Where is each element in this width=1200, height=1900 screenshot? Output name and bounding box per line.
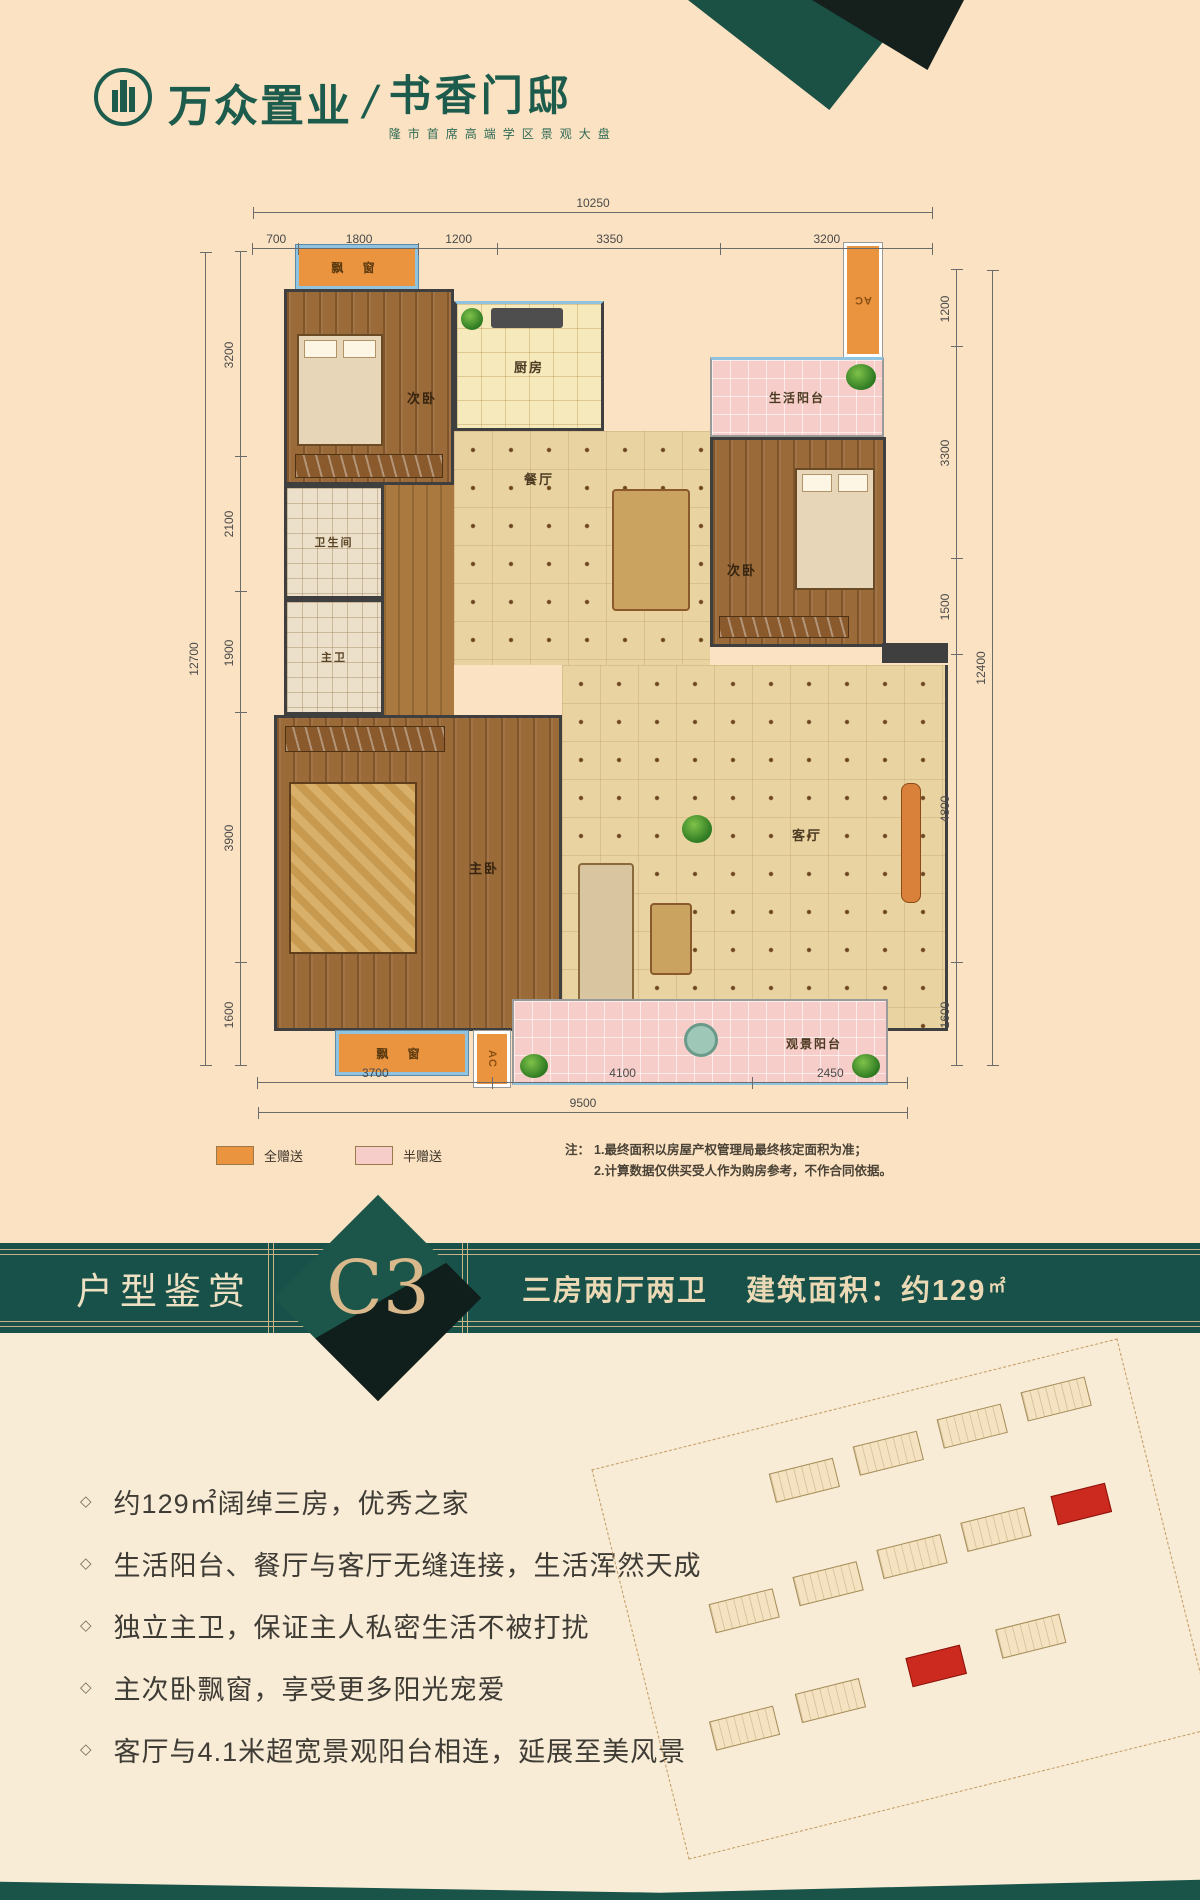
note-line: 1.最终面积以房屋产权管理局最终核定面积为准； [594, 1140, 892, 1161]
dimension-segment: 700 [253, 248, 299, 249]
dimension-segment: 3200 [240, 252, 241, 457]
dimension-total-top: 10250 [253, 212, 933, 213]
dimension-segment: 3300 [956, 347, 957, 559]
hallway [384, 485, 454, 715]
room-label: 生活阳台 [769, 389, 825, 406]
room-label: 飘 窗 [331, 259, 382, 276]
site-building [709, 1706, 780, 1751]
site-building [876, 1534, 947, 1579]
room-bay-window-top: 飘 窗 [296, 245, 418, 289]
dimension-segment: 1500 [956, 559, 957, 655]
project-name: 书香门邸 [389, 62, 617, 123]
dimension-segment: 3200 [721, 248, 933, 249]
dimension-segment: 1900 [240, 592, 241, 714]
wall-segment [882, 643, 948, 663]
feature-item: ◇生活阳台、餐厅与客厅无缝连接，生活浑然天成 [80, 1532, 702, 1594]
disclaimer-note: 注： 1.最终面积以房屋产权管理局最终核定面积为准； 2.计算数据仅供买受人作为… [565, 1140, 892, 1182]
coffee-table-icon [650, 903, 692, 975]
bed-icon [795, 468, 875, 590]
section-title: 户型鉴赏 [76, 1261, 252, 1315]
room-kitchen: 厨房 [454, 301, 604, 431]
feature-item: ◇客厅与4.1米超宽景观阳台相连，延展至美风景 [80, 1718, 702, 1780]
unit-description: 三房两厅两卫 建筑面积：约129㎡ [522, 1267, 1007, 1309]
gold-line [0, 1254, 1200, 1255]
developer-logo-icon [92, 66, 154, 128]
legend: 全赠送 半赠送 [216, 1146, 442, 1165]
dimension-total-left: 12700 [205, 252, 206, 1066]
dining-table-icon [612, 489, 690, 611]
room-label: 次卧 [727, 560, 757, 579]
plant-icon [461, 308, 483, 330]
plant-icon [682, 815, 712, 843]
poster-page: 万众置业 / 书香门邸 隆市首席高端学区景观大盘 飘 窗 次卧 厨房 AC [0, 0, 1200, 1900]
note-prefix: 注： [565, 1140, 590, 1182]
room-bedroom-right: 次卧 [710, 437, 886, 647]
site-building [708, 1588, 779, 1633]
dimension-segment: 1800 [299, 248, 418, 249]
dimension-segment: 3350 [498, 248, 720, 249]
floor-plan: 飘 窗 次卧 厨房 AC 生活阳台 餐厅 [250, 243, 950, 1055]
diamond-bullet-icon: ◇ [80, 1616, 92, 1634]
dimension-segment: 4100 [493, 1082, 753, 1083]
dimension-row-bottom: 370041002450 [258, 1082, 908, 1083]
site-building [995, 1614, 1066, 1659]
legend-swatch-orange [216, 1146, 254, 1165]
room-label: 飘 窗 [376, 1045, 427, 1062]
room-label: 卫生间 [315, 534, 354, 550]
feature-item: ◇独立主卫，保证主人私密生活不被打扰 [80, 1594, 702, 1656]
plant-icon [846, 364, 876, 390]
unit-layout: 三房两厅两卫 [522, 1267, 708, 1309]
dimension-segment: 1200 [956, 270, 957, 347]
sofa-icon [578, 863, 634, 1005]
plant-icon [520, 1054, 548, 1078]
feature-text: 主次卧飘窗，享受更多阳光宠爱 [114, 1668, 506, 1707]
feature-text: 约129㎡阔绰三房，优秀之家 [114, 1482, 470, 1521]
site-building [937, 1404, 1008, 1449]
room-bay-window-bottom: 飘 窗 [336, 1031, 468, 1075]
room-bathroom: 卫生间 [284, 485, 384, 599]
legend-item-half-gift: 半赠送 [355, 1146, 442, 1165]
brand-header: 万众置业 / 书香门邸 隆市首席高端学区景观大盘 [92, 62, 617, 142]
room-label: 客厅 [792, 825, 822, 844]
legend-item-full-gift: 全赠送 [216, 1146, 303, 1165]
dimension-col-right: 12003300150048001600 [956, 270, 957, 1066]
note-line: 2.计算数据仅供买受人作为购房参考，不作合同依据。 [594, 1161, 892, 1182]
site-building [795, 1678, 866, 1723]
room-dining: 餐厅 [454, 431, 710, 665]
diamond-bullet-icon: ◇ [80, 1678, 92, 1696]
wardrobe-icon [295, 454, 443, 478]
room-living-balcony: 生活阳台 [710, 357, 884, 437]
feature-item: ◇主次卧飘窗，享受更多阳光宠爱 [80, 1656, 702, 1718]
diamond-bullet-icon: ◇ [80, 1554, 92, 1572]
site-building [769, 1458, 840, 1503]
site-building [960, 1507, 1031, 1552]
legend-label: 全赠送 [264, 1146, 303, 1165]
dimension-col-left: 32002100190039001600 [240, 252, 241, 1066]
pillow-icon [304, 340, 337, 358]
pillow-icon [343, 340, 376, 358]
highlighted-building [1051, 1483, 1113, 1526]
dimension-total-bottom: 9500 [258, 1112, 908, 1113]
dimension-segment: 3900 [240, 713, 241, 963]
gold-line [0, 1249, 1200, 1250]
room-label: AC [486, 1050, 498, 1068]
unit-banner: 户型鉴赏 三房两厅两卫 建筑面积：约129㎡ [0, 1243, 1200, 1333]
wardrobe-icon [285, 726, 445, 752]
balcony-table-icon [684, 1023, 718, 1057]
highlighted-building [905, 1645, 967, 1688]
plant-icon [852, 1054, 880, 1078]
gold-line [0, 1326, 1200, 1327]
diamond-bullet-icon: ◇ [80, 1740, 92, 1758]
wardrobe-icon [719, 616, 849, 638]
project-tagline: 隆市首席高端学区景观大盘 [389, 125, 617, 142]
dimension-segment: 3700 [258, 1082, 493, 1083]
gold-line [0, 1321, 1200, 1322]
room-label: 厨房 [514, 357, 544, 376]
tv-cabinet-icon [901, 783, 921, 903]
ac-platform-top: AC [844, 243, 882, 357]
room-label: 观景阳台 [786, 1035, 842, 1052]
bed-icon [297, 334, 383, 446]
room-label: 餐厅 [524, 469, 554, 488]
gold-divider [273, 1243, 274, 1333]
developer-name: 万众置业 [168, 70, 352, 134]
gold-divider [268, 1243, 269, 1333]
room-master-bathroom: 主卫 [284, 599, 384, 715]
dimension-segment: 1200 [419, 248, 499, 249]
site-building [1021, 1376, 1092, 1421]
dimension-segment: 1600 [956, 963, 957, 1066]
diamond-bullet-icon: ◇ [80, 1492, 92, 1510]
dimension-segment: 4800 [956, 655, 957, 963]
master-bed-icon [289, 782, 417, 954]
site-building [853, 1431, 924, 1476]
pillow-icon [802, 474, 833, 492]
room-label: 次卧 [407, 388, 437, 407]
brand-separator: / [358, 75, 382, 129]
room-living: 客厅 [562, 665, 948, 1031]
feature-text: 客厅与4.1米超宽景观阳台相连，延展至美风景 [114, 1730, 687, 1769]
legend-label: 半赠送 [403, 1146, 442, 1165]
legend-swatch-pink [355, 1146, 393, 1165]
pillow-icon [838, 474, 869, 492]
feature-text: 独立主卫，保证主人私密生活不被打扰 [114, 1606, 590, 1645]
dimension-row-top: 7001800120033503200 [253, 248, 933, 249]
unit-code: C3 [312, 1243, 444, 1333]
dimension-total-right: 12400 [992, 270, 993, 1066]
dimension-segment: 2100 [240, 457, 241, 592]
unit-area: 建筑面积：约129㎡ [746, 1267, 1007, 1309]
stove-icon [491, 308, 563, 328]
room-bedroom-top-left: 次卧 [284, 289, 454, 485]
room-label: AC [854, 294, 872, 306]
room-label: 主卧 [469, 858, 499, 877]
room-master-bedroom: 主卧 [274, 715, 562, 1031]
dimension-segment: 1600 [240, 963, 241, 1066]
site-building [792, 1561, 863, 1606]
room-label: 主卫 [321, 649, 347, 665]
dimension-segment: 2450 [753, 1082, 908, 1083]
